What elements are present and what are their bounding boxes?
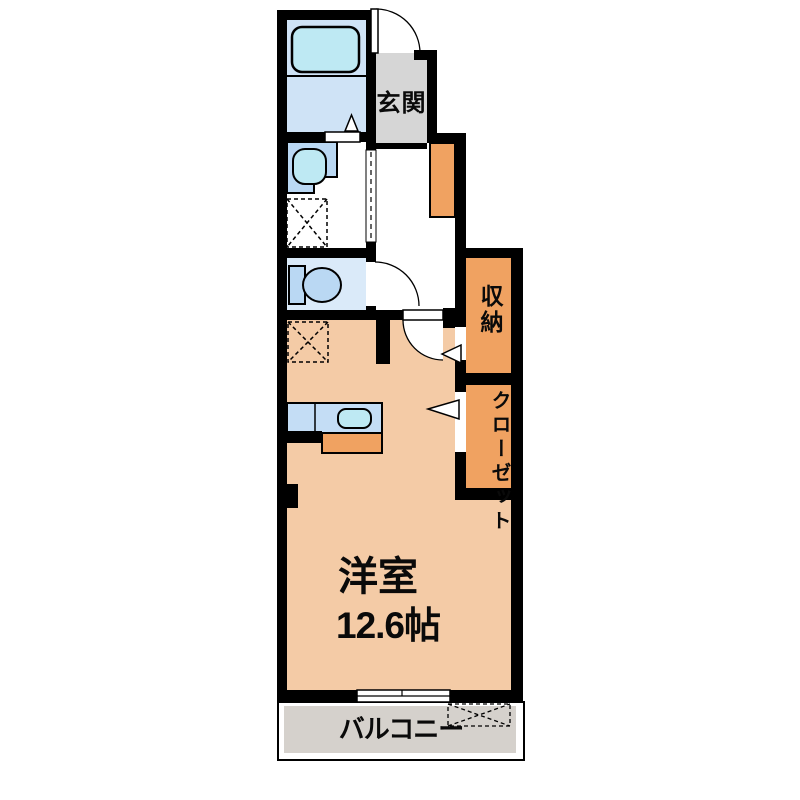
closet-label: クローゼット	[463, 390, 511, 486]
bathtub	[292, 27, 359, 72]
storage-label: 収納	[470, 284, 510, 344]
balcony-window	[357, 690, 450, 702]
kitchen-front	[322, 433, 382, 453]
kitchen-sink	[338, 409, 371, 428]
entrance-label: 玄関	[376, 83, 427, 118]
room-size-label: 12.6帖	[336, 595, 440, 649]
floor-plan: 玄関 収納 クローゼット 洋室 12.6帖 バルコニー	[0, 0, 800, 800]
floor-plan-drawing	[0, 0, 800, 800]
entrance-door	[371, 9, 420, 53]
balcony-label: バルコニー	[330, 709, 472, 746]
washbasin-sink	[293, 149, 326, 184]
sliding-door	[366, 150, 376, 242]
room-name-label: 洋室	[338, 544, 418, 602]
toilet	[289, 266, 341, 304]
shoe-cabinet	[430, 143, 455, 217]
